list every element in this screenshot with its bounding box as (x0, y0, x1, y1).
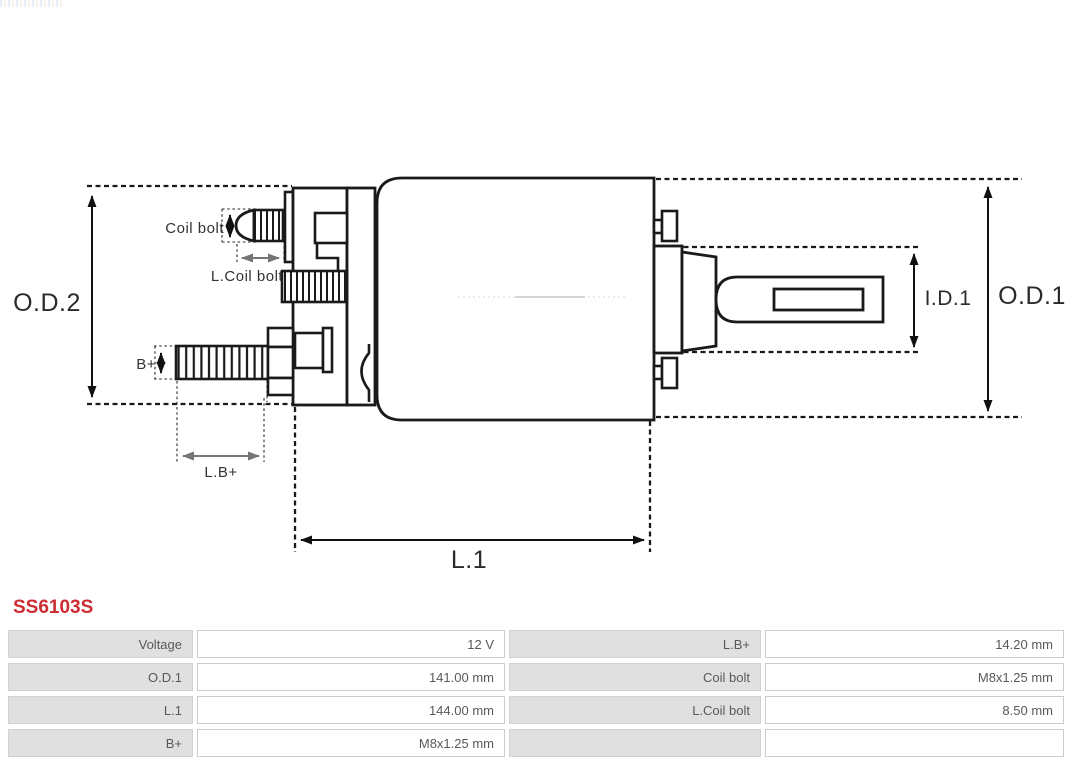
spec-label: Coil bolt (509, 663, 761, 691)
washer (323, 328, 332, 372)
spec-label (509, 729, 761, 757)
spec-value: 14.20 mm (765, 630, 1064, 658)
plunger-slot (774, 289, 863, 310)
coil-thread-block (282, 271, 347, 302)
spec-value: 141.00 mm (197, 663, 505, 691)
spec-label: Voltage (8, 630, 193, 658)
spec-value: 144.00 mm (197, 696, 505, 724)
id1-label: I.D.1 (925, 287, 972, 310)
lb-plus-label: L.B+ (204, 464, 237, 481)
mounting-bracket (282, 188, 375, 405)
od2-label: O.D.2 (13, 289, 81, 317)
b-plus-terminal (176, 328, 293, 395)
guide-lines (154, 209, 284, 462)
spec-label: L.B+ (509, 630, 761, 658)
plunger-assembly (654, 246, 883, 353)
coil-bolt (236, 210, 283, 241)
spec-label: L.Coil bolt (509, 696, 761, 724)
spec-label: O.D.1 (8, 663, 193, 691)
l1-label: L.1 (451, 546, 487, 574)
b-plus-label: B+ (136, 356, 156, 373)
spec-value: M8x1.25 mm (765, 663, 1064, 691)
spec-value: 12 V (197, 630, 505, 658)
l-coil-bolt-label: L.Coil bolt (211, 268, 284, 285)
solenoid-case (377, 178, 654, 420)
spec-label: L.1 (8, 696, 193, 724)
spec-value (765, 729, 1064, 757)
od1-label: O.D.1 (998, 282, 1066, 310)
spec-label: B+ (8, 729, 193, 757)
spec-table: Voltage 12 V L.B+ 14.20 mm O.D.1 141.00 … (8, 630, 1072, 757)
technical-drawing: O.D.2 O.D.1 I.D.1 L.1 Coil bolt L.Coil b… (0, 0, 1080, 595)
spec-value: 8.50 mm (765, 696, 1064, 724)
coil-bolt-label: Coil bolt (165, 220, 224, 237)
product-drawing-page: O.D.2 O.D.1 I.D.1 L.1 Coil bolt L.Coil b… (0, 0, 1080, 767)
part-number: SS6103S (13, 597, 93, 619)
spec-value: M8x1.25 mm (197, 729, 505, 757)
